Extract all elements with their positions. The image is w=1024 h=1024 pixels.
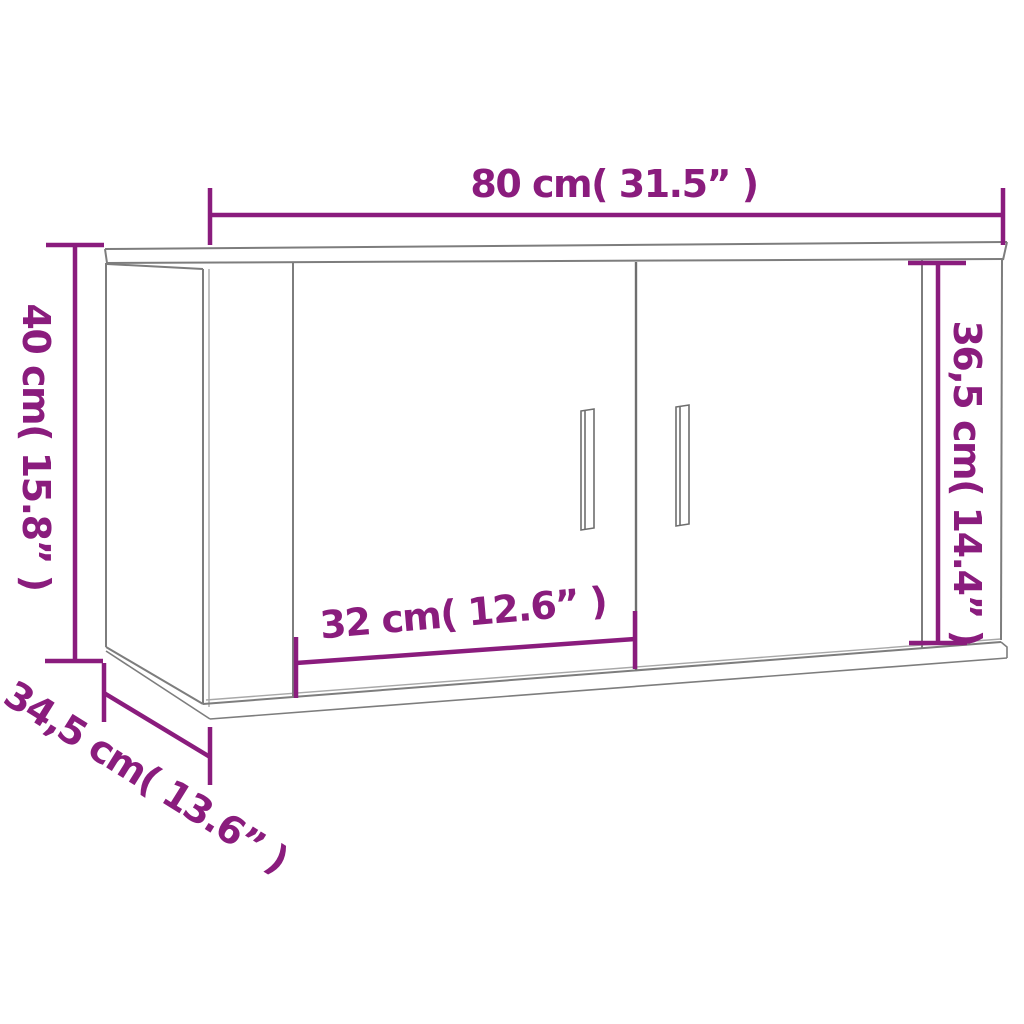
dimension-diagram: 80 cm( 31.5” ) 40 cm( 15.8” ) 36,5 cm( 1… xyxy=(0,0,1024,1024)
height-dimension-label: 40 cm( 15.8” ) xyxy=(17,303,55,590)
cabinet-top-edge xyxy=(105,242,1007,263)
cabinet-line-drawing xyxy=(0,0,1024,1024)
width-dimension-label: 80 cm( 31.5” ) xyxy=(470,165,757,203)
cabinet-right-edge xyxy=(1001,260,1002,640)
cabinet-outline xyxy=(105,242,1007,719)
cabinet-left-side xyxy=(106,263,210,719)
door-height-dimension-label: 36,5 cm( 14.4” ) xyxy=(948,320,986,645)
left-door-handle xyxy=(581,409,594,530)
cabinet-bottom-edge xyxy=(203,639,1007,719)
right-door-handle xyxy=(676,405,689,526)
